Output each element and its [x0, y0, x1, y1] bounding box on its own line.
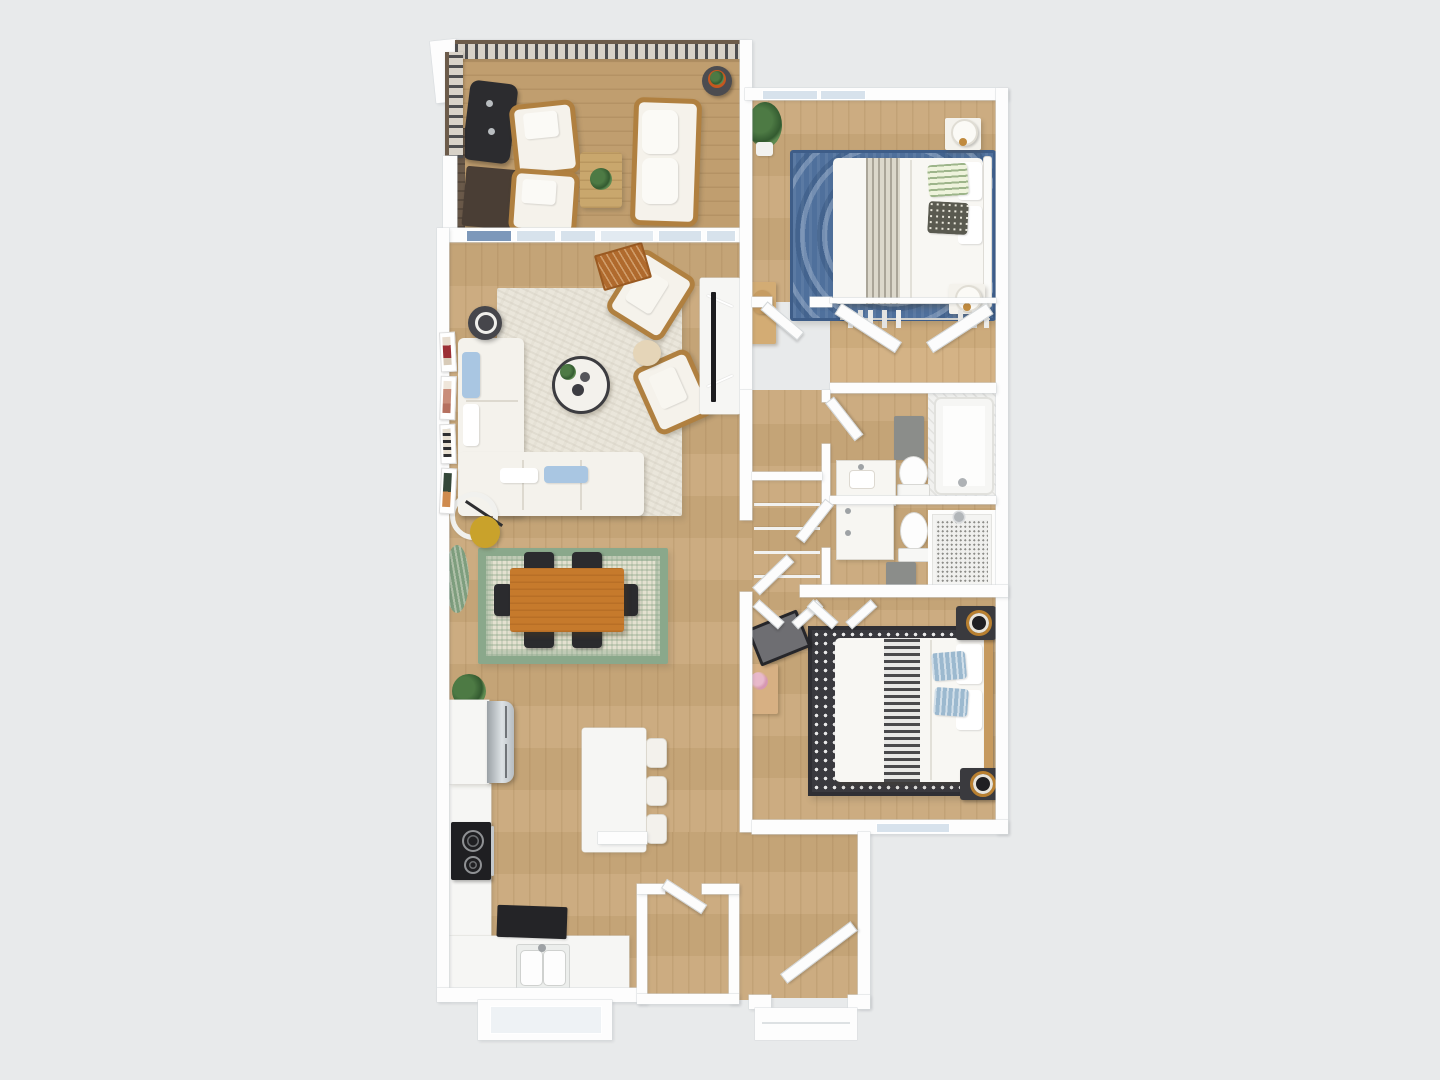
- shower-mosaic-floor: [936, 520, 988, 582]
- primary-bed-throw: [866, 158, 900, 304]
- burner: [464, 856, 482, 874]
- sofa-pillow-white: [463, 404, 479, 446]
- primary-pillow-green-pattern: [927, 163, 969, 198]
- sofa-pillow-blue: [462, 352, 480, 398]
- hall-bath-mat: [886, 562, 916, 586]
- entry-stoop: [755, 1008, 857, 1040]
- table-plant: [590, 168, 612, 190]
- stoop-line: [762, 1022, 850, 1024]
- linen-closet-top-wall: [752, 472, 822, 480]
- lamp-base-dot: [963, 303, 971, 311]
- primary-closet-top-strip: [830, 298, 996, 303]
- burner: [462, 830, 484, 852]
- speaker-cone: [966, 610, 992, 636]
- lounge-chair-cushion: [523, 110, 560, 139]
- gallery-art-blush: [442, 381, 451, 413]
- second-pillow-blue-stripe: [931, 651, 967, 682]
- gallery-art-red: [442, 337, 451, 365]
- closet-bath-divider-wall: [830, 383, 996, 393]
- side-table-plant: [710, 71, 724, 85]
- bar-stool: [646, 814, 667, 844]
- hall-bath-divider-stub: [822, 444, 830, 502]
- vanity-faucet: [858, 464, 864, 470]
- gallery-art-stripe: [443, 429, 452, 457]
- vanity-sink: [849, 470, 875, 489]
- grill-knob: [486, 100, 493, 107]
- right-exterior-wall: [996, 88, 1008, 834]
- sofa-pillow-white: [500, 468, 538, 483]
- loveseat-cushion: [642, 110, 678, 154]
- balcony-railing-left: [445, 52, 463, 158]
- vanity-faucet: [845, 508, 851, 514]
- plant-pot-white: [756, 142, 773, 156]
- coffee-table-bowl: [572, 384, 584, 396]
- sink-basin: [520, 950, 543, 986]
- vanity-faucet: [845, 530, 851, 536]
- hall-toilet-bowl: [900, 512, 928, 550]
- lamp-base-dot: [959, 138, 967, 146]
- bar-stool: [646, 776, 667, 806]
- second-headboard: [984, 634, 993, 786]
- window: [560, 230, 596, 242]
- dining-table: [510, 568, 624, 632]
- primary-bed-fold: [910, 160, 912, 302]
- entry-east-wall: [858, 832, 870, 1008]
- window: [516, 230, 556, 242]
- entry-closet-wall-stub: [637, 884, 665, 894]
- refrigerator-handle: [505, 706, 507, 738]
- speaker-cone: [970, 771, 996, 797]
- entry-bottom-wall-stub: [749, 995, 771, 1009]
- entry-bottom-wall-stub: [848, 995, 870, 1009]
- second-bedroom-west-wall: [740, 592, 752, 832]
- arc-lamp-shade-gold: [470, 516, 500, 548]
- primary-window: [762, 90, 818, 100]
- shower-head: [954, 512, 964, 522]
- bar-stool: [646, 738, 667, 768]
- window-blue-shade: [466, 230, 512, 242]
- entry-closet-wall: [729, 884, 739, 1004]
- kitchen-window: [490, 1006, 602, 1034]
- entry-closet-wall: [637, 884, 647, 1004]
- bath-divider-wall: [830, 496, 996, 504]
- refrigerator-handle: [505, 744, 507, 778]
- window: [706, 230, 736, 242]
- primary-bath-mat: [894, 416, 924, 460]
- balcony-door-glass: [600, 230, 654, 242]
- refrigerator-cabinet: [449, 700, 489, 784]
- coffee-table-bowl: [580, 372, 590, 382]
- grill-knob: [488, 128, 495, 135]
- living-hall-divider-wall: [740, 390, 752, 520]
- second-bed-runner: [884, 638, 920, 782]
- kitchen-entry-wall-stub: [598, 832, 647, 844]
- refrigerator: [487, 701, 514, 783]
- hall-toilet-tank: [898, 548, 930, 562]
- tub-faucet: [958, 478, 967, 487]
- entry-floor: [640, 832, 868, 998]
- balcony-left-wall: [443, 156, 457, 232]
- sink-faucet: [538, 944, 546, 952]
- floorplan-scene: [0, 0, 1440, 1080]
- tv-console: [700, 278, 740, 414]
- second-bedroom-top-wall: [800, 585, 1008, 597]
- coffee-table-plant: [560, 364, 576, 380]
- primary-bedroom-south-wall-stub: [810, 297, 832, 307]
- sofa-pillow-blue: [544, 466, 588, 483]
- balcony-railing-top: [455, 40, 747, 59]
- entry-closet-wall: [637, 994, 739, 1004]
- side-table-decor: [475, 312, 497, 334]
- pouf: [633, 340, 661, 366]
- sink-basin: [543, 950, 566, 986]
- tv-screen: [711, 292, 716, 402]
- second-pillow-blue-stripe: [933, 687, 969, 717]
- kitchen-floor-mat: [496, 905, 567, 939]
- lounge-chair-cushion: [521, 179, 557, 205]
- second-bedroom-window: [876, 823, 950, 833]
- primary-pillow-dark-pattern: [927, 201, 969, 235]
- oven-handle: [491, 826, 494, 876]
- window: [658, 230, 702, 242]
- entry-closet-wall-stub: [702, 884, 739, 894]
- desk-flowers: [750, 672, 768, 690]
- sofa-seat-seam: [466, 400, 518, 402]
- loveseat-cushion: [642, 158, 678, 204]
- primary-window: [820, 90, 866, 100]
